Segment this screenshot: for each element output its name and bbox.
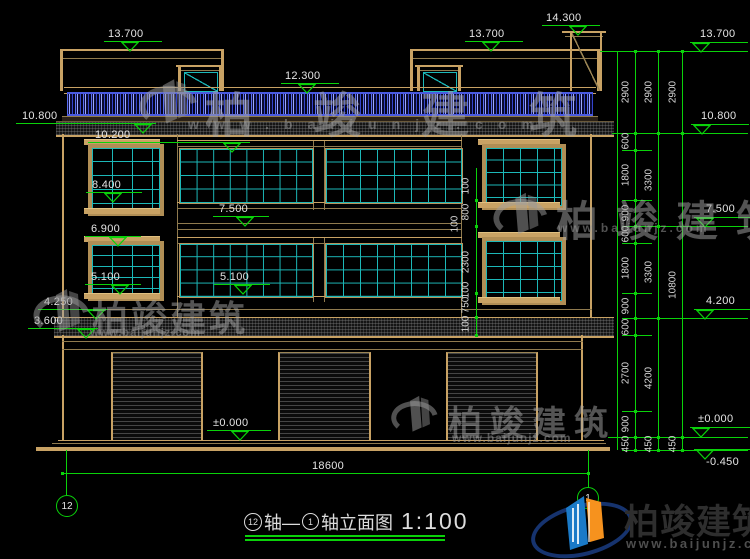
dim-tick xyxy=(657,50,660,53)
elevation-triangle-icon xyxy=(692,428,710,438)
dormer-left-pediment-line xyxy=(178,70,222,71)
band-line xyxy=(62,309,592,310)
window-sill xyxy=(478,297,560,303)
logo-company-url: www.baijunjz.com xyxy=(626,536,750,551)
elevation-triangle-icon xyxy=(234,285,252,295)
title-axis-mid: 轴— xyxy=(264,509,300,535)
elevation-triangle-icon xyxy=(696,310,714,320)
bottom-dim-ext-left xyxy=(66,450,67,495)
dim-value: 2900 xyxy=(644,81,655,103)
dim-value: 4200 xyxy=(644,367,655,389)
window-band2f-right xyxy=(325,243,463,298)
window-sill xyxy=(84,208,160,214)
dim-value: 450 xyxy=(621,436,632,453)
dim-value: 900 xyxy=(621,205,632,222)
gf-beam-line xyxy=(62,349,583,350)
dim-tick xyxy=(657,436,660,439)
chimney-body xyxy=(570,33,602,91)
elevation-triangle-icon xyxy=(693,125,711,135)
dim-tick xyxy=(681,449,684,452)
extension-line xyxy=(622,293,652,294)
wall-right-edge xyxy=(590,134,592,317)
dim-tick xyxy=(634,149,637,152)
elevation-value: 8.400 xyxy=(92,179,121,191)
dim-tick xyxy=(634,132,637,135)
gf-wall-left xyxy=(62,335,64,440)
elevation-triangle-icon xyxy=(111,285,129,295)
dim-tick xyxy=(634,410,637,413)
dim-value: 3300 xyxy=(644,169,655,191)
extension-line xyxy=(622,411,652,412)
axis-bubble-12: 12 xyxy=(56,495,78,517)
watermark-text: 柏竣建筑 xyxy=(556,188,750,249)
window-right-upper xyxy=(482,144,566,210)
extension-line xyxy=(600,51,748,52)
dim-value: 450 xyxy=(668,436,679,453)
extension-line xyxy=(612,133,748,134)
dim-value: 2300 xyxy=(461,251,472,273)
dim-chain-line xyxy=(682,51,683,450)
dim-tick xyxy=(475,292,478,295)
elevation-triangle-icon xyxy=(482,42,500,52)
extension-line xyxy=(622,318,748,319)
dim-tick xyxy=(681,132,684,135)
dim-value: 600 xyxy=(621,226,632,243)
dim-value: 600 xyxy=(621,319,632,336)
mid-dim-chain-line xyxy=(476,168,477,336)
dim-value: 1800 xyxy=(621,257,632,279)
roller-door-2 xyxy=(278,352,371,441)
band-line xyxy=(177,223,462,224)
extension-line xyxy=(622,243,652,244)
title-scale: 1:100 xyxy=(401,508,469,535)
dormer-left-pediment xyxy=(176,65,224,67)
dim-value: 900 xyxy=(621,298,632,315)
dim-tick xyxy=(475,225,478,228)
dim-chain-line xyxy=(658,51,659,450)
dormer-right-pediment-line xyxy=(417,70,461,71)
dim-tick xyxy=(634,50,637,53)
elevation-triangle-icon xyxy=(87,310,105,320)
elevation-triangle-icon xyxy=(104,193,122,203)
dim-tick xyxy=(681,50,684,53)
axis-number: 12 xyxy=(61,501,72,512)
elevation-value: 4.200 xyxy=(706,295,735,307)
elevation-value: 6.900 xyxy=(91,223,120,235)
title-name: 轴立面图 xyxy=(321,509,393,535)
elevation-triangle-icon xyxy=(231,431,249,441)
dim-value: 100 xyxy=(461,178,472,195)
elevation-drawing-canvas: 18600 12 1 12 轴— 1 轴立面图 1:100 柏竣建筑 www.b… xyxy=(0,0,750,559)
wall-column-left xyxy=(177,134,178,317)
dim-value: 3300 xyxy=(644,261,655,283)
dim-value: 100 xyxy=(461,316,472,333)
dim-tick xyxy=(681,436,684,439)
window-right-lower xyxy=(482,237,566,305)
band-line xyxy=(177,146,462,147)
elevation-triangle-icon xyxy=(696,218,714,228)
elevation-triangle-icon xyxy=(569,26,587,36)
roller-door-3 xyxy=(446,352,538,441)
elevation-triangle-icon xyxy=(692,43,710,53)
extension-line xyxy=(622,226,748,227)
plinth-line xyxy=(58,440,604,441)
dim-tick xyxy=(634,334,637,337)
bottom-dim-line xyxy=(62,473,588,474)
roof-slab-left-top xyxy=(60,49,224,51)
elevation-triangle-icon xyxy=(134,124,152,134)
window-band3f-right xyxy=(325,148,463,204)
elevation-triangle-icon xyxy=(236,217,254,227)
extension-line xyxy=(622,200,652,201)
dim-tick xyxy=(587,472,590,475)
elevation-value: ±0.000 xyxy=(698,413,733,425)
title-underline-2 xyxy=(245,539,445,541)
bottom-dim-value: 18600 xyxy=(312,460,344,472)
elevation-triangle-icon xyxy=(696,450,714,460)
dim-value: 600 xyxy=(621,133,632,150)
dim-tick xyxy=(475,199,478,202)
dim-tick xyxy=(61,472,64,475)
extension-line xyxy=(622,150,652,151)
dim-value: 2900 xyxy=(621,81,632,103)
wall-left-edge xyxy=(62,134,64,317)
dim-value: 2700 xyxy=(621,362,632,384)
elevation-value: 3.600 xyxy=(34,315,63,327)
elevation-value: 10.800 xyxy=(701,110,736,122)
dim-value: 900 xyxy=(621,416,632,433)
watermark-url: www.baijunjz.com xyxy=(558,221,710,235)
dim-value: 100 xyxy=(450,216,461,233)
elevation-value: 7.500 xyxy=(219,203,248,215)
dim-tick xyxy=(634,317,637,320)
elevation-triangle-icon xyxy=(77,329,95,339)
dim-tick xyxy=(657,225,660,228)
elevation-triangle-icon xyxy=(298,84,316,94)
title-axis-start-circle: 12 xyxy=(244,513,262,531)
cornice-lower xyxy=(54,317,614,338)
plinth-line xyxy=(52,443,606,444)
elevation-triangle-icon xyxy=(109,237,127,247)
elevation-value: 5.100 xyxy=(220,271,249,283)
dim-value: 1800 xyxy=(621,164,632,186)
dim-tick xyxy=(634,292,637,295)
window-sill xyxy=(478,202,560,208)
elevation-value: 10.200 xyxy=(95,129,130,141)
company-logo: 柏竣建筑 www.baijunjz.com xyxy=(528,478,750,558)
elevation-value: 10.800 xyxy=(22,110,57,122)
extension-line xyxy=(617,51,618,450)
dim-tick xyxy=(657,317,660,320)
dim-tick xyxy=(634,242,637,245)
dim-value: 2900 xyxy=(668,81,679,103)
dim-tick xyxy=(634,225,637,228)
band-line xyxy=(177,237,462,238)
gf-beam-line xyxy=(62,341,583,342)
window-band3f-left xyxy=(179,148,314,204)
watermark-logo-icon xyxy=(390,390,440,440)
dim-tick xyxy=(475,316,478,319)
elevation-value: 4.250 xyxy=(44,296,73,308)
elevation-value: 14.300 xyxy=(546,12,581,24)
logo-building-icon xyxy=(546,486,616,554)
dim-tick xyxy=(634,449,637,452)
dim-chain-line xyxy=(635,51,636,450)
dim-tick xyxy=(634,436,637,439)
balustrade-balusters xyxy=(67,92,593,116)
elevation-value: 12.300 xyxy=(285,70,320,82)
dim-tick xyxy=(634,199,637,202)
ground-bar xyxy=(36,447,610,451)
dormer-right-pediment xyxy=(415,65,463,67)
elevation-triangle-icon xyxy=(223,143,241,153)
roof-slab-left-cap-l xyxy=(60,49,63,91)
dim-value: 10800 xyxy=(668,271,679,299)
band-line xyxy=(177,140,462,141)
dim-tick xyxy=(657,449,660,452)
drawing-title: 12 轴— 1 轴立面图 1:100 xyxy=(244,508,469,535)
elevation-value: 13.700 xyxy=(469,28,504,40)
band-line xyxy=(177,229,462,230)
dim-tick xyxy=(475,334,478,337)
dim-value: 450 xyxy=(644,436,655,453)
elevation-value: 7.500 xyxy=(706,203,735,215)
elevation-triangle-icon xyxy=(121,42,139,52)
gf-wall-right xyxy=(581,335,583,440)
elevation-value: 13.700 xyxy=(700,28,735,40)
roof-slab-left-bottom xyxy=(60,58,224,59)
dim-value: 750 xyxy=(461,297,472,314)
elevation-value: 5.100 xyxy=(91,271,120,283)
roller-door-1 xyxy=(111,352,203,441)
extension-line xyxy=(622,450,748,451)
elevation-value: 13.700 xyxy=(108,28,143,40)
dim-value: 800 xyxy=(461,204,472,221)
title-underline-1 xyxy=(245,535,445,537)
elevation-value: ±0.000 xyxy=(213,417,248,429)
roof-slab-right-cap-l xyxy=(410,49,413,91)
title-axis-end-circle: 1 xyxy=(302,513,319,530)
dim-tick xyxy=(657,132,660,135)
